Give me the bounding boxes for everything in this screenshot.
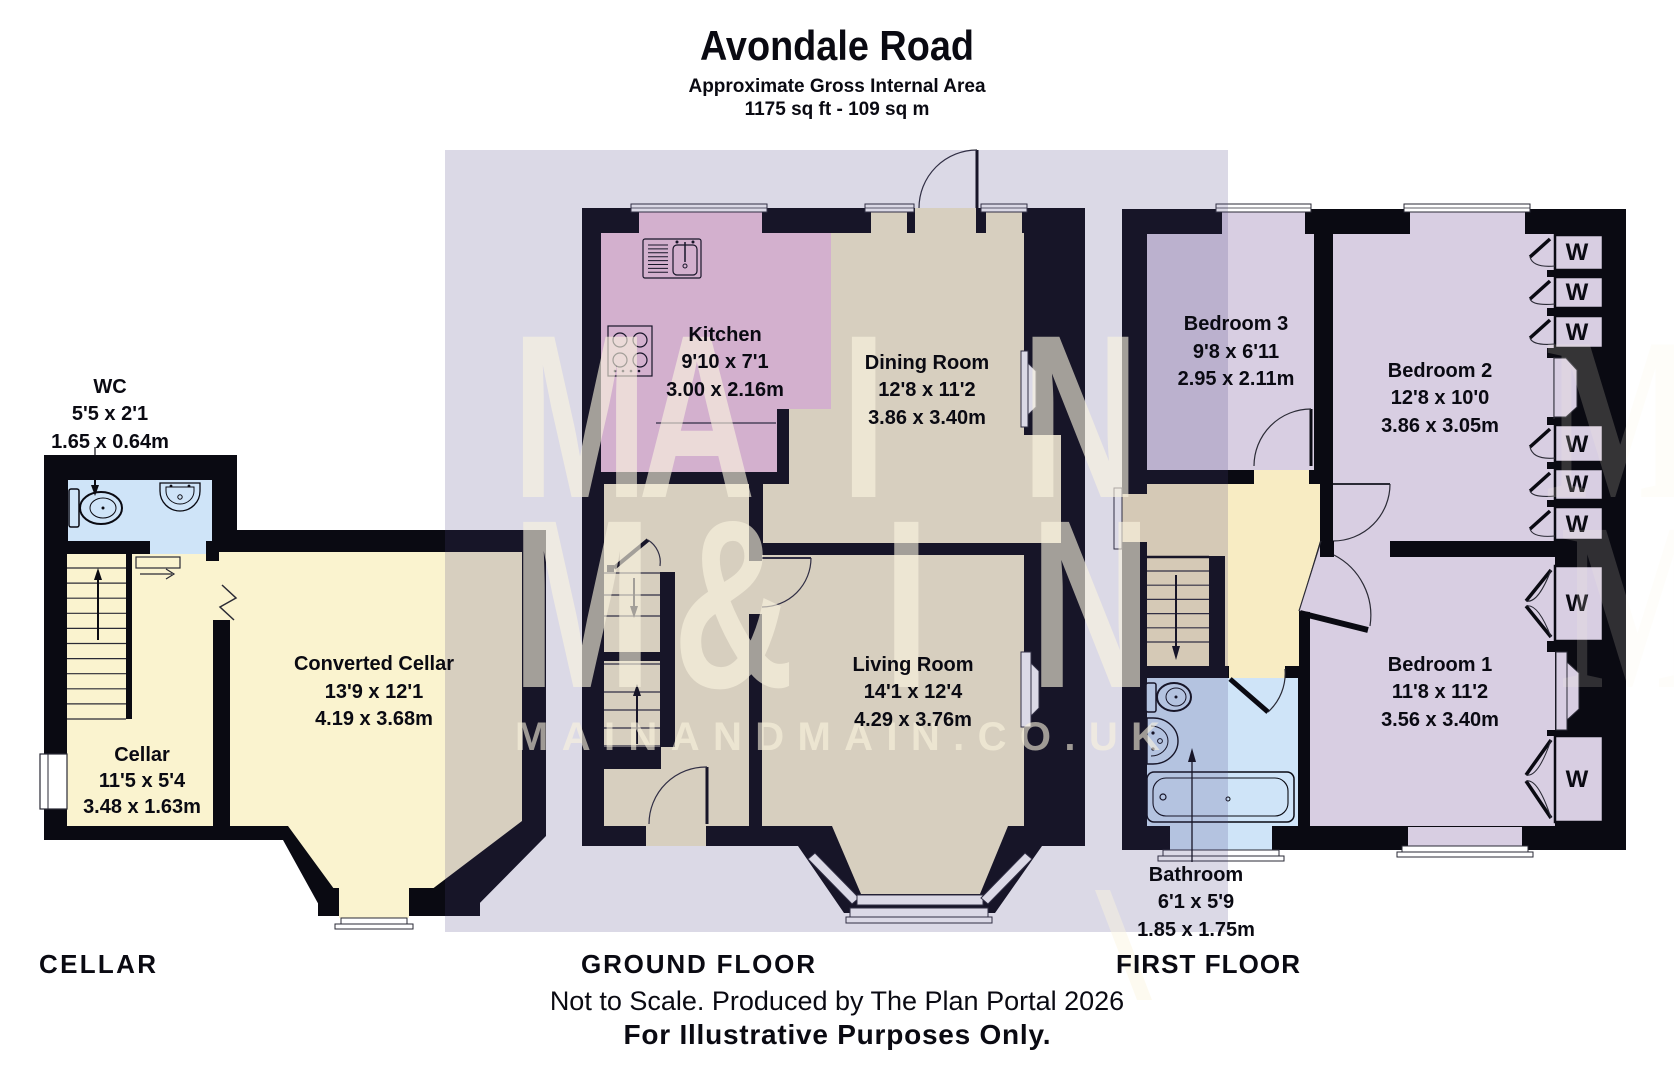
svg-text:&: & — [673, 469, 794, 738]
svg-text:Approximate Gross Internal Are: Approximate Gross Internal Area — [688, 76, 985, 97]
svg-text:5'5 x 2'1: 5'5 x 2'1 — [72, 403, 148, 425]
svg-text:W: W — [1566, 239, 1589, 266]
svg-text:3.00 x 2.16m: 3.00 x 2.16m — [666, 379, 784, 401]
svg-text:1.65 x 0.64m: 1.65 x 0.64m — [51, 431, 169, 453]
svg-text:6'1 x 5'9: 6'1 x 5'9 — [1158, 891, 1234, 913]
svg-text:For Illustrative Purposes Only: For Illustrative Purposes Only. — [624, 1019, 1051, 1050]
svg-text:12'8 x 11'2: 12'8 x 11'2 — [878, 379, 975, 401]
svg-text:3.86 x 3.05m: 3.86 x 3.05m — [1381, 415, 1499, 437]
svg-text:1.85 x 1.75m: 1.85 x 1.75m — [1137, 919, 1255, 941]
svg-text:FIRST FLOOR: FIRST FLOOR — [1116, 949, 1300, 979]
svg-text:1175 sq ft - 109 sq m: 1175 sq ft - 109 sq m — [745, 99, 930, 120]
svg-text:Kitchen: Kitchen — [688, 324, 761, 346]
svg-text:11'8 x 11'2: 11'8 x 11'2 — [1392, 681, 1488, 703]
svg-text:9'10 x 7'1: 9'10 x 7'1 — [681, 351, 768, 373]
svg-text:Not to Scale. Produced by The: Not to Scale. Produced by The Plan Porta… — [550, 986, 1124, 1016]
svg-text:3.56 x 3.40m: 3.56 x 3.40m — [1381, 709, 1499, 731]
svg-text:12'8 x 10'0: 12'8 x 10'0 — [1391, 387, 1490, 409]
svg-text:Bedroom 3: Bedroom 3 — [1184, 313, 1288, 335]
svg-text:M: M — [1560, 473, 1674, 739]
svg-text:13'9 x 12'1: 13'9 x 12'1 — [325, 681, 424, 703]
svg-text:Bathroom: Bathroom — [1149, 864, 1243, 886]
svg-text:Living Room: Living Room — [852, 654, 973, 676]
svg-text:CELLAR: CELLAR — [39, 949, 156, 979]
svg-text:Cellar: Cellar — [114, 744, 170, 766]
svg-text:N: N — [1030, 469, 1151, 738]
svg-text:11'5 x 5'4: 11'5 x 5'4 — [99, 770, 186, 792]
svg-text:4.29 x 3.76m: 4.29 x 3.76m — [854, 709, 972, 731]
svg-text:4.19 x 3.68m: 4.19 x 3.68m — [315, 708, 433, 730]
svg-text:9'8 x 6'11: 9'8 x 6'11 — [1193, 341, 1279, 363]
svg-text:WC: WC — [93, 376, 126, 398]
svg-text:Avondale Road: Avondale Road — [700, 22, 974, 69]
svg-text:3.48 x 1.63m: 3.48 x 1.63m — [83, 796, 201, 818]
svg-text:2.95 x 2.11m: 2.95 x 2.11m — [1178, 368, 1295, 390]
svg-text:GROUND FLOOR: GROUND FLOOR — [581, 949, 815, 979]
svg-text:Dining Room: Dining Room — [865, 352, 989, 374]
svg-text:W: W — [1566, 766, 1589, 793]
svg-text:3.86 x 3.40m: 3.86 x 3.40m — [868, 407, 986, 429]
svg-text:Bedroom 2: Bedroom 2 — [1388, 360, 1492, 382]
svg-text:M: M — [512, 469, 652, 738]
svg-text:14'1 x 12'4: 14'1 x 12'4 — [864, 681, 963, 703]
svg-text:Converted Cellar: Converted Cellar — [294, 653, 454, 675]
svg-text:Bedroom 1: Bedroom 1 — [1388, 654, 1492, 676]
